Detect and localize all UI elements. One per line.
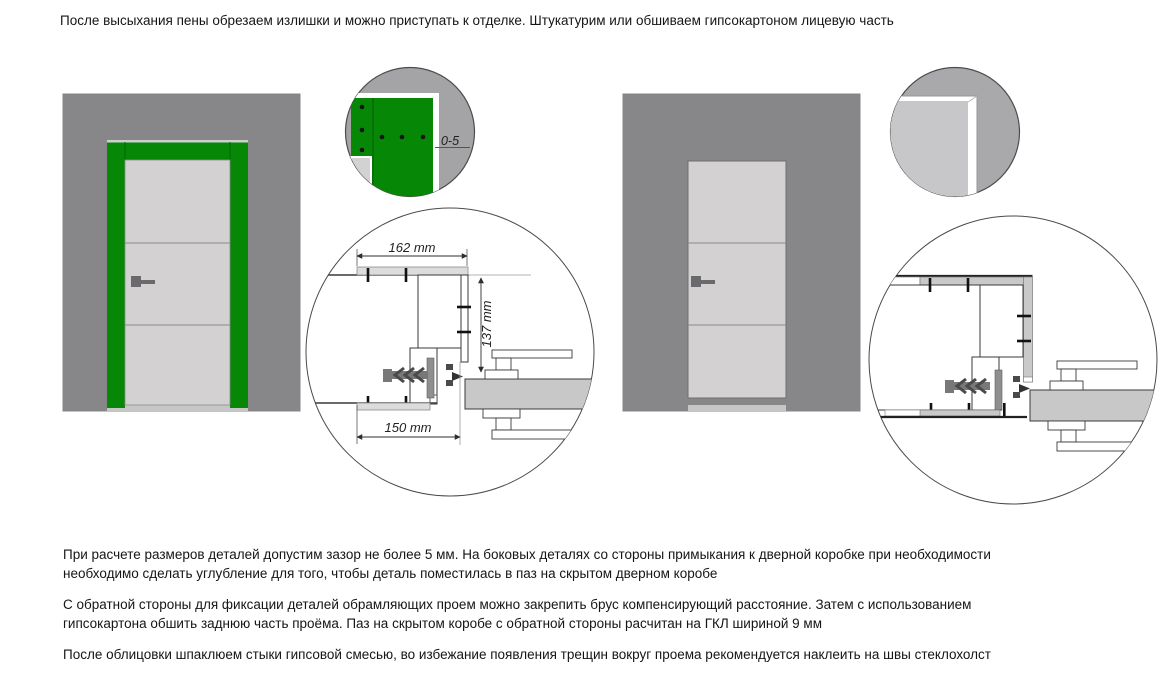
- paragraph-line: При расчете размеров деталей допустим за…: [63, 545, 991, 564]
- paragraph-line: С обратной стороны для фиксации деталей …: [63, 595, 971, 614]
- section-detail-finished: [865, 212, 1165, 512]
- frame-jamb-right: [230, 142, 248, 408]
- dim-label-150: 150 mm: [385, 420, 432, 435]
- hidden-frame-profile: [980, 285, 1023, 357]
- cladding-strip-top: [357, 267, 468, 275]
- profile-channel: [461, 275, 468, 362]
- frame-jamb-left: [107, 142, 125, 408]
- instruction-sheet: После высыхания пены обрезаем излишки и …: [0, 0, 1170, 681]
- handle-lever: [701, 280, 715, 284]
- handle-base: [691, 276, 701, 287]
- section-detail-dimensioned: 162 mm 137 mm 150 mm: [300, 202, 600, 502]
- frame-head: [107, 142, 248, 160]
- drywall-endcap: [1024, 377, 1033, 382]
- drywall-band-top: [920, 277, 1032, 285]
- paragraph-line: После облицовки шпаклюем стыки гипсовой …: [63, 645, 991, 664]
- frame-edge-block: [351, 157, 371, 187]
- door-elevation-finished: [622, 93, 862, 413]
- dowel-tip: [945, 380, 954, 393]
- door-leaf-section: [465, 379, 593, 409]
- door-elevation-framed: [62, 93, 302, 413]
- section-circle: [869, 216, 1157, 504]
- door-leaf: [688, 161, 786, 398]
- door-leaf-section: [1030, 390, 1160, 421]
- handle-lever: [141, 280, 155, 284]
- dim-label-162: 162 mm: [389, 240, 436, 255]
- dowel-tip: [383, 369, 392, 382]
- paragraph-back-side: С обратной стороны для фиксации деталей …: [63, 595, 971, 633]
- frame-top-edge: [107, 140, 248, 143]
- anchor-plate: [427, 358, 434, 398]
- plastered-corner: [889, 101, 968, 198]
- paragraph-line: необходимо сделать углубление для того, …: [63, 564, 991, 583]
- gap-strip-bottom: [885, 410, 920, 416]
- corner-detail-finished: [889, 66, 1029, 206]
- floor-strip: [688, 405, 786, 411]
- handle-base: [131, 276, 141, 287]
- hidden-frame-profile: [418, 275, 461, 348]
- paragraph-line: гипсокартона обшить заднюю часть проёма.…: [63, 614, 971, 633]
- corner-detail-framed: 0-5: [344, 66, 484, 206]
- drywall-band-bottom: [920, 410, 1000, 416]
- anchor-plate: [995, 370, 1002, 410]
- paragraph-gap-allowance: При расчете размеров деталей допустим за…: [63, 545, 991, 583]
- shadow-gap-side: [433, 93, 439, 200]
- top-caption: После высыхания пены обрезаем излишки и …: [60, 12, 894, 30]
- gap-dimension-label: 0-5: [441, 134, 459, 148]
- dim-label-137: 137 mm: [479, 300, 494, 347]
- shadow-gap-top: [351, 93, 438, 98]
- paragraph-finishing: После облицовки шпаклюем стыки гипсовой …: [63, 645, 991, 664]
- cladding-strip-bottom: [357, 403, 430, 410]
- drywall-band-side: [1024, 277, 1033, 382]
